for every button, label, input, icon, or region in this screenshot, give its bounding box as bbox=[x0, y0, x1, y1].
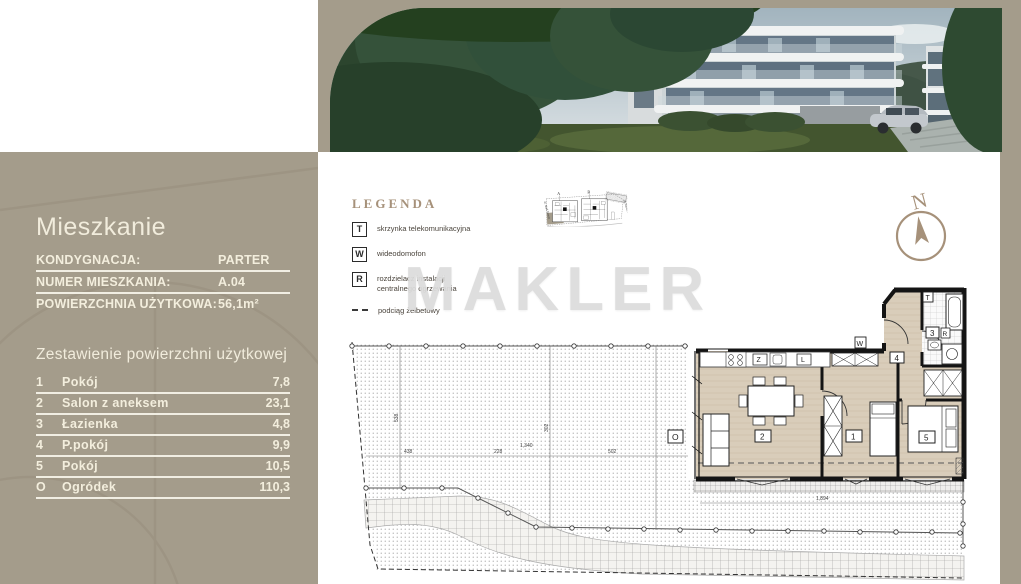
dim-label: 1,340 bbox=[520, 443, 533, 449]
shrub bbox=[745, 112, 805, 132]
sofa bbox=[703, 414, 729, 466]
garden-wall bbox=[800, 106, 880, 124]
room-2-label: 2 bbox=[760, 433, 765, 442]
telecom-marker: T bbox=[926, 295, 931, 302]
kitchen-counter bbox=[700, 352, 830, 367]
room-3-label: 3 bbox=[930, 329, 935, 338]
room-area: 4,8 bbox=[273, 415, 290, 434]
north-compass: N bbox=[890, 188, 954, 268]
utility-meter-box bbox=[611, 212, 614, 220]
area-table: Zestawienie powierzchni użytkowej 1 Pokó… bbox=[36, 346, 290, 499]
room-number: 5 bbox=[36, 457, 62, 476]
right-accent-strip bbox=[1000, 0, 1021, 584]
heating-manifold-icon: R bbox=[352, 272, 367, 287]
room-name: Łazienka bbox=[62, 415, 273, 434]
building-a-label: A bbox=[557, 191, 561, 196]
building-photo bbox=[330, 8, 1002, 152]
detail-label: POWIERZCHNIA UŻYTKOWA: bbox=[36, 297, 217, 311]
detail-row: POWIERZCHNIA UŻYTKOWA: 56,1m² bbox=[36, 294, 290, 314]
room-area: 110,3 bbox=[259, 478, 290, 497]
wardrobe-under-bath bbox=[924, 370, 962, 396]
table-row: 2 Salon z aneksem 23,1 bbox=[36, 394, 290, 415]
legend-item: T skrzynka telekomunikacyjna bbox=[352, 222, 552, 237]
room-number: 3 bbox=[36, 415, 62, 434]
room-number: 2 bbox=[36, 394, 62, 413]
detail-value: PARTER bbox=[218, 250, 270, 270]
room-5-label: 5 bbox=[924, 434, 929, 443]
room-name: Ogródek bbox=[62, 478, 259, 497]
radiator bbox=[956, 458, 963, 474]
detail-row: KONDYGNACJA: PARTER bbox=[36, 250, 290, 272]
room-number: 4 bbox=[36, 436, 62, 455]
dim-label: 502 bbox=[608, 449, 617, 455]
street-label-right: ul. Siedlecka bbox=[623, 199, 632, 217]
terrace-strip bbox=[694, 480, 964, 492]
dashed-beam-icon bbox=[352, 309, 368, 311]
apartment-details: KONDYGNACJA: PARTER NUMER MIESZKANIA: A.… bbox=[36, 250, 290, 314]
washing-machine bbox=[942, 344, 962, 364]
room-name: P.pokój bbox=[62, 436, 273, 455]
dim-label: 1,894 bbox=[816, 496, 829, 502]
room-name: Salon z aneksem bbox=[62, 394, 266, 413]
telecom-box-icon: T bbox=[352, 222, 367, 237]
garden-o-label: O bbox=[672, 432, 679, 442]
room-area: 7,8 bbox=[273, 373, 290, 392]
dim-label: 302 bbox=[544, 423, 550, 432]
flyer-canvas: Mieszkanie KONDYGNACJA: PARTER NUMER MIE… bbox=[0, 0, 1021, 584]
site-plan-inner: A B ul. Nad Torem ul. Siedlecka bbox=[543, 190, 631, 227]
room-1-label: 1 bbox=[851, 433, 856, 442]
table-row: 3 Łazienka 4,8 bbox=[36, 415, 290, 436]
bed-room1 bbox=[870, 402, 896, 456]
bed-room5 bbox=[908, 406, 958, 452]
kitchen-l-label: L bbox=[801, 357, 805, 364]
table-row: 1 Pokój 7,8 bbox=[36, 373, 290, 394]
room-name: Pokój bbox=[62, 457, 266, 476]
north-label: N bbox=[909, 188, 930, 215]
legend-item-label: skrzynka telekomunikacyjna bbox=[377, 224, 470, 234]
table-row: 5 Pokój 10,5 bbox=[36, 457, 290, 478]
room-area: 10,5 bbox=[266, 457, 290, 476]
detail-value: 56,1m² bbox=[218, 294, 259, 314]
building-b-outline bbox=[581, 199, 607, 221]
hall-cabinet bbox=[832, 353, 878, 366]
detail-row: NUMER MIESZKANIA: A.04 bbox=[36, 272, 290, 294]
floor-plan: 438 228 502 1,340 1,894 480 266 480 202 … bbox=[345, 283, 1003, 584]
watermark: MAKLER bbox=[404, 254, 711, 325]
room-number: O bbox=[36, 478, 62, 497]
kitchen-z-label: Z bbox=[757, 357, 762, 364]
wardrobe bbox=[824, 396, 842, 456]
building-b-label: B bbox=[587, 190, 590, 195]
building-photo-scene bbox=[330, 8, 1002, 152]
detail-label: NUMER MIESZKANIA: bbox=[36, 275, 171, 289]
room-area: 9,9 bbox=[273, 436, 290, 455]
table-row: O Ogródek 110,3 bbox=[36, 478, 290, 499]
page-title: Mieszkanie bbox=[36, 213, 166, 242]
room-4-label: 4 bbox=[895, 354, 900, 363]
room-name: Pokój bbox=[62, 373, 273, 392]
site-road bbox=[547, 223, 622, 227]
dim-label: 228 bbox=[494, 449, 503, 455]
bathtub bbox=[946, 294, 963, 330]
detail-label: KONDYGNACJA: bbox=[36, 253, 141, 267]
manifold-marker: R bbox=[943, 331, 948, 338]
video-intercom-icon: W bbox=[352, 247, 367, 262]
table-row: 4 P.pokój 9,9 bbox=[36, 436, 290, 457]
legend-title: LEGENDA bbox=[352, 196, 552, 212]
building-a-outline bbox=[553, 201, 578, 222]
room-number: 1 bbox=[36, 373, 62, 392]
intercom-marker: W bbox=[857, 341, 864, 348]
washbasin bbox=[928, 340, 941, 350]
area-table-title: Zestawienie powierzchni użytkowej bbox=[36, 346, 290, 364]
apartment-info-sidebar: Mieszkanie KONDYGNACJA: PARTER NUMER MIE… bbox=[0, 152, 318, 584]
detail-value: A.04 bbox=[218, 272, 245, 292]
compass-needle-icon bbox=[911, 215, 929, 245]
dim-label: 538 bbox=[394, 413, 400, 422]
room-area: 23,1 bbox=[266, 394, 290, 413]
dim-label: 438 bbox=[404, 449, 413, 455]
